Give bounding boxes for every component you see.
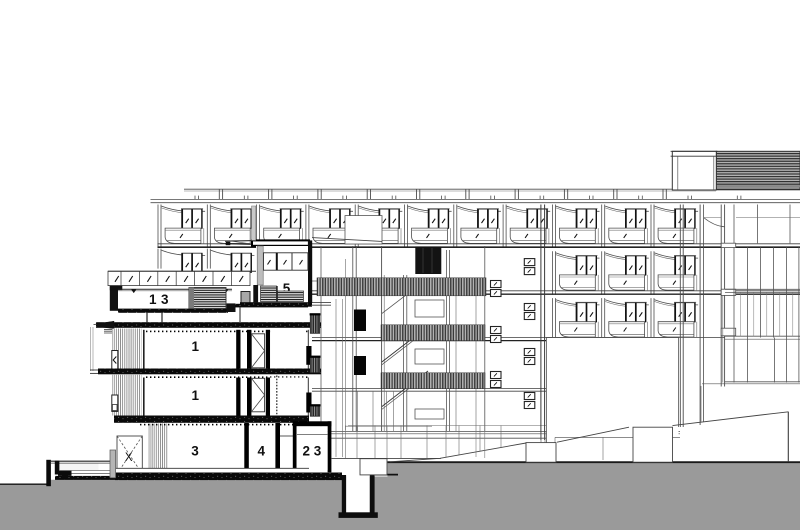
svg-text:1: 1 [192,388,200,403]
svg-text:X: X [125,452,133,464]
svg-text:3: 3 [191,444,199,459]
svg-text:1 3: 1 3 [149,292,169,307]
svg-text:1: 1 [192,339,200,354]
svg-text:4: 4 [258,444,266,459]
svg-text:2 3: 2 3 [303,444,322,459]
